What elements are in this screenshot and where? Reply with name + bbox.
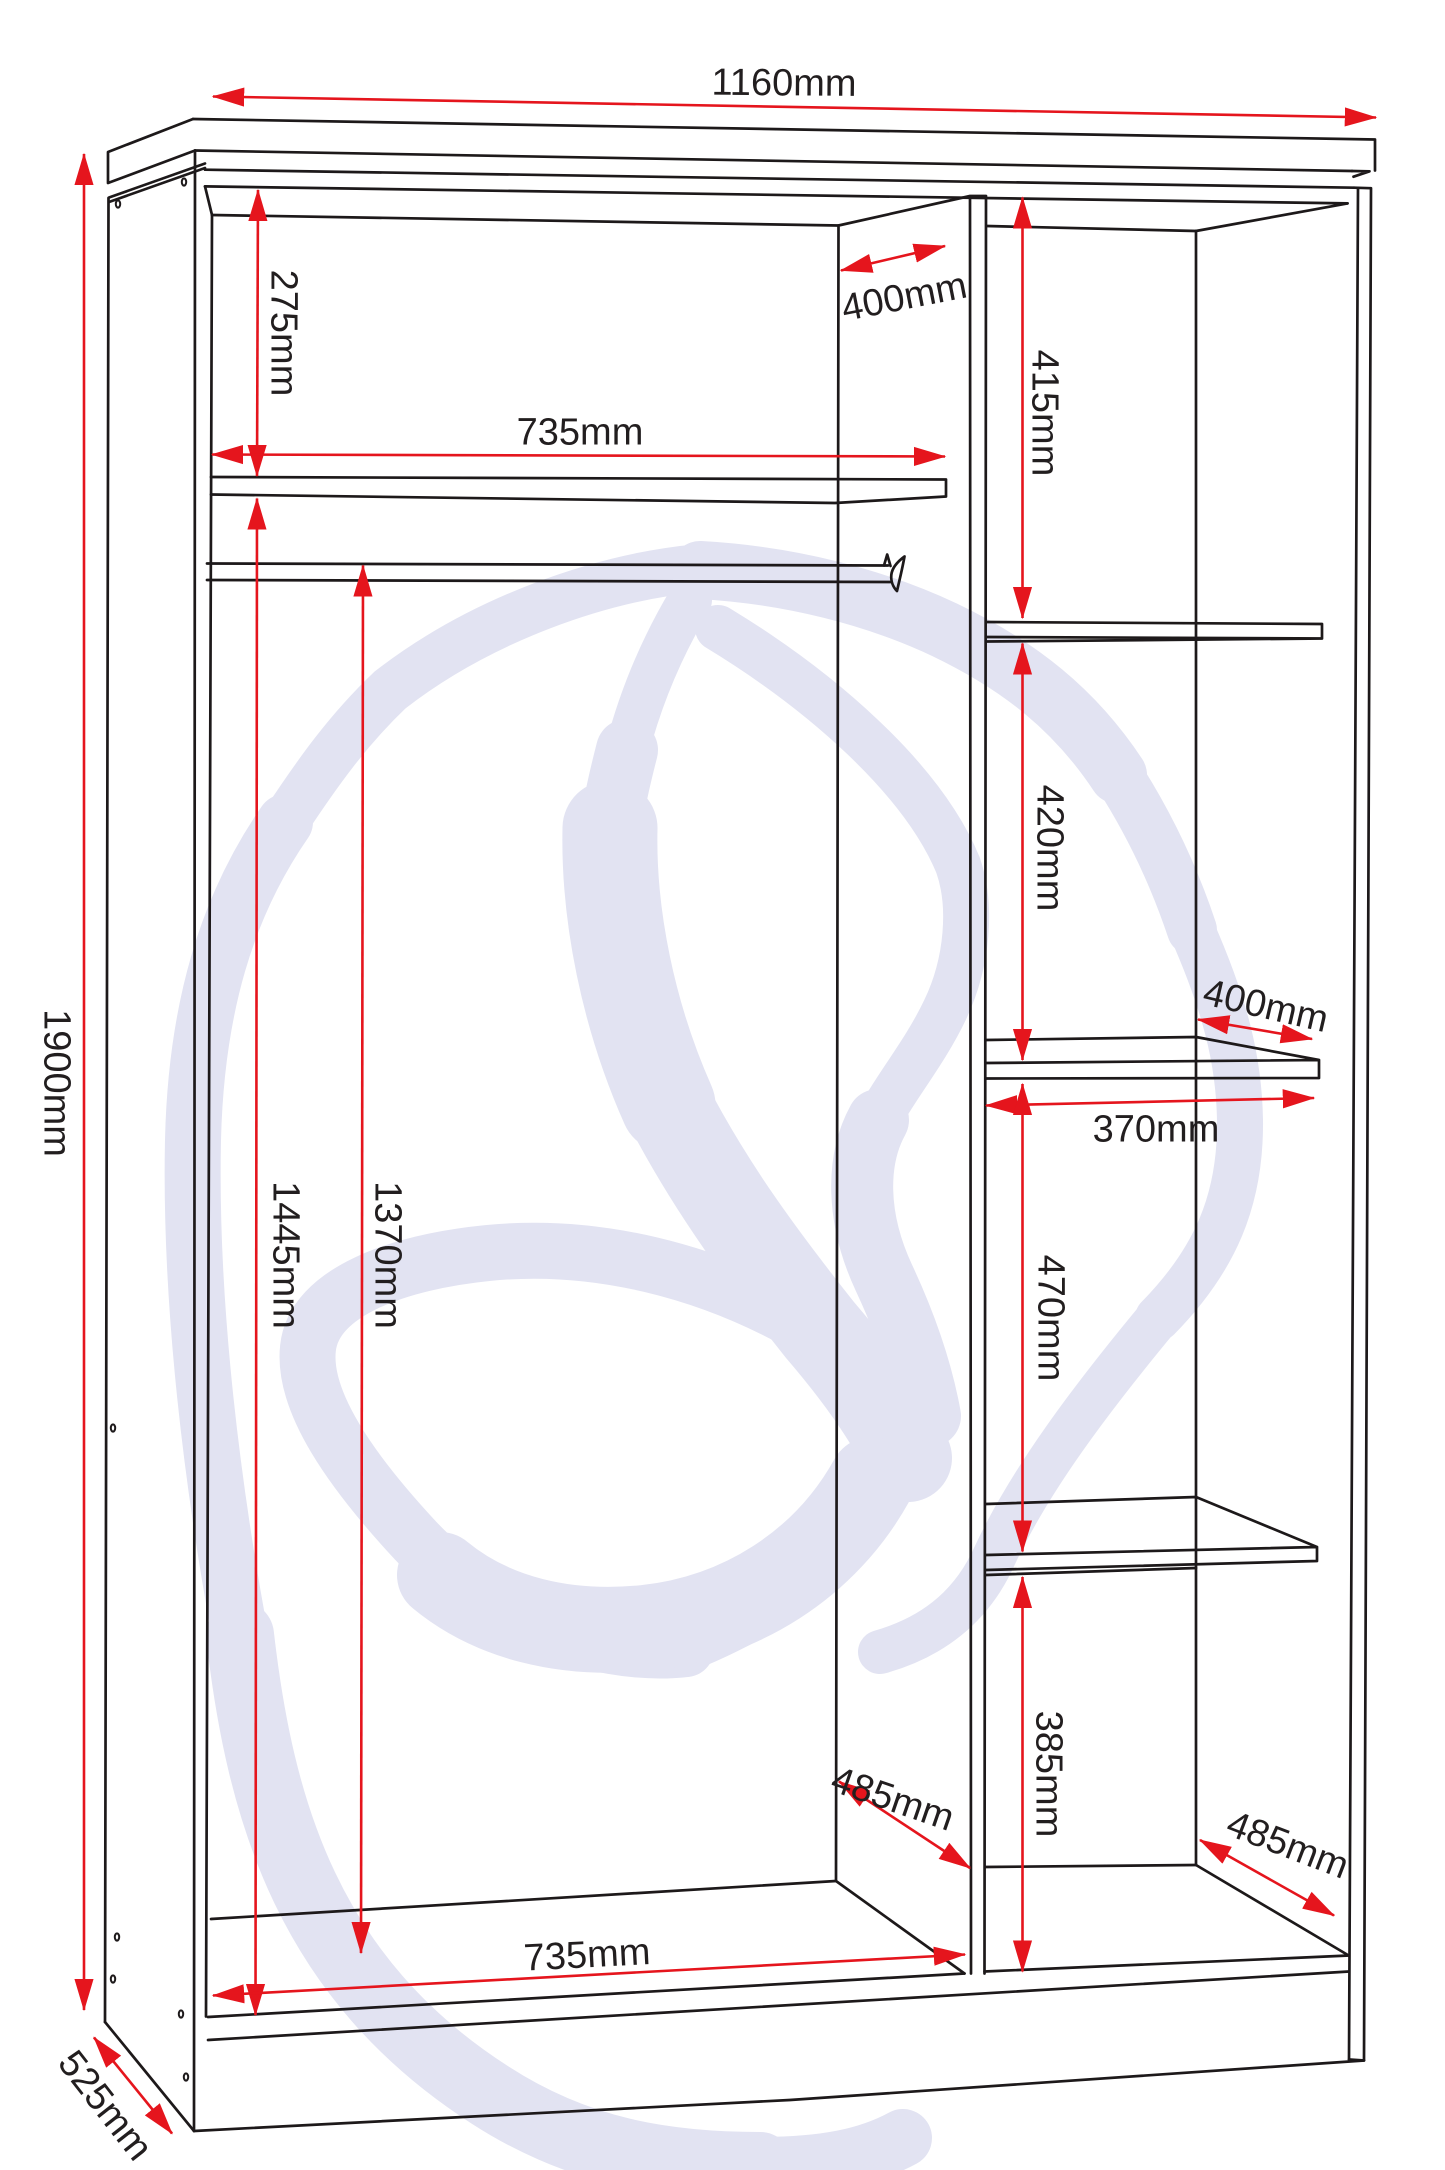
svg-text:275mm: 275mm xyxy=(263,270,305,397)
svg-text:415mm: 415mm xyxy=(1024,350,1066,477)
svg-text:1160mm: 1160mm xyxy=(711,62,856,105)
svg-text:1370mm: 1370mm xyxy=(367,1181,409,1329)
svg-text:385mm: 385mm xyxy=(1028,1711,1070,1838)
svg-text:735mm: 735mm xyxy=(517,411,644,453)
svg-text:1900mm: 1900mm xyxy=(36,1009,78,1157)
svg-text:735mm: 735mm xyxy=(523,1931,652,1980)
svg-text:1445mm: 1445mm xyxy=(265,1181,307,1329)
svg-text:370mm: 370mm xyxy=(1093,1108,1220,1150)
svg-text:470mm: 470mm xyxy=(1030,1255,1072,1382)
svg-text:420mm: 420mm xyxy=(1029,785,1071,912)
